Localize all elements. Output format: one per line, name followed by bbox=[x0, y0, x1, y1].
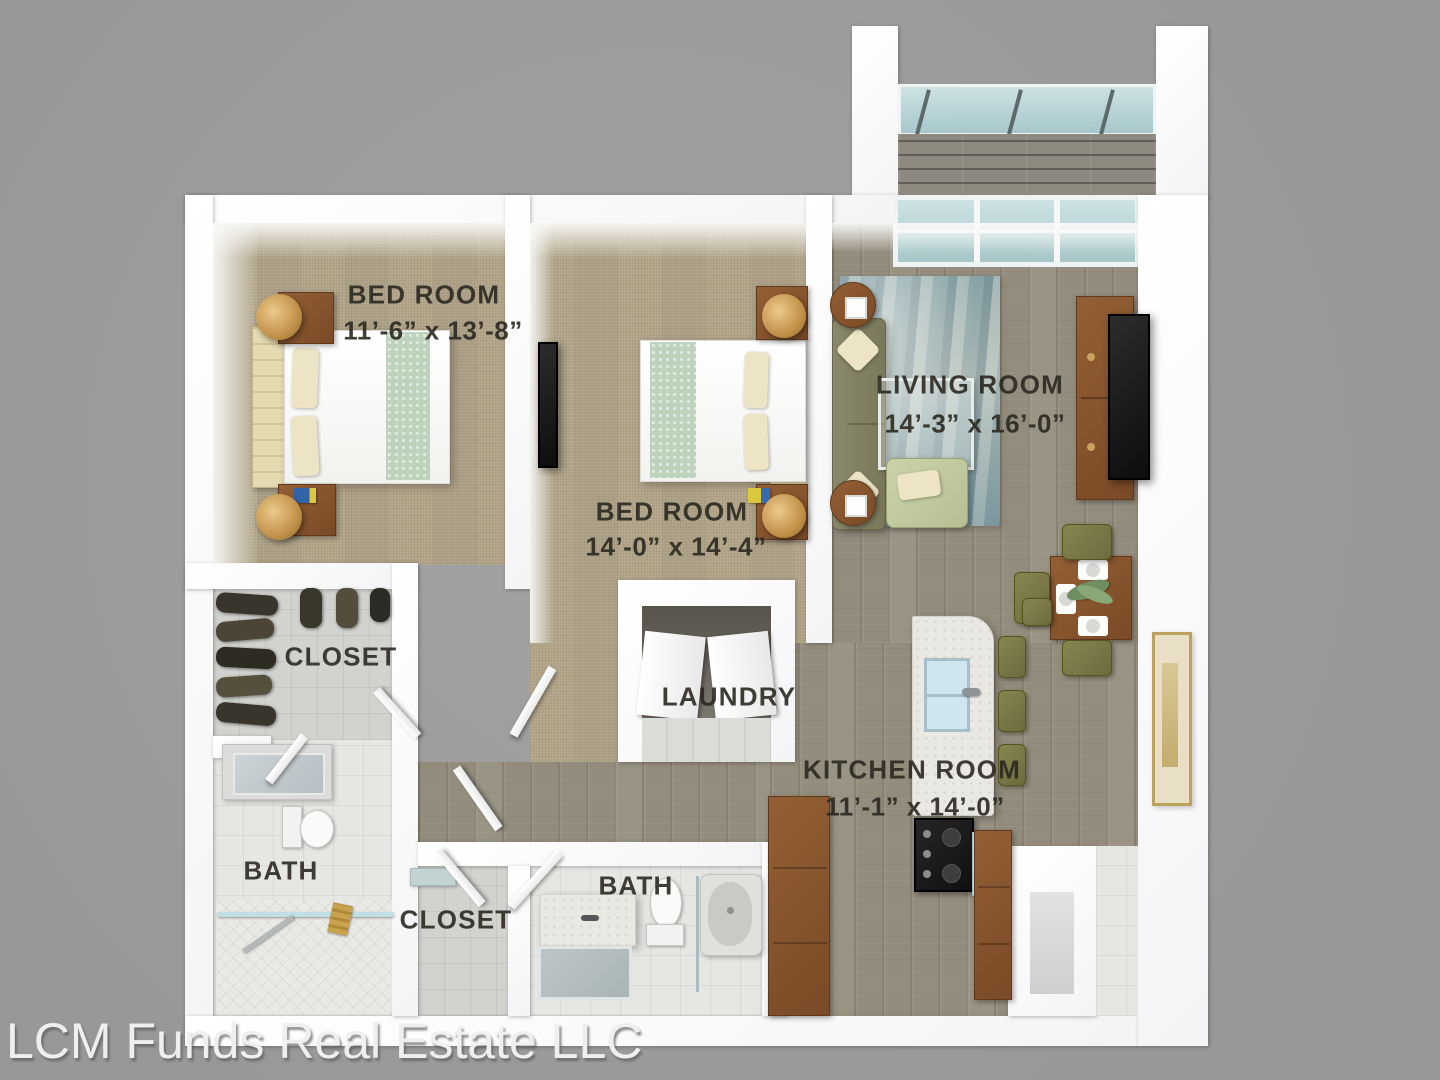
toilet-tank bbox=[646, 924, 684, 946]
balcony-deck bbox=[898, 134, 1156, 198]
closet-main-label: CLOSET bbox=[285, 642, 398, 673]
laundry-threshold bbox=[642, 718, 771, 762]
closet-hall-label: CLOSET bbox=[400, 905, 513, 936]
stove-knob-icon bbox=[923, 830, 931, 838]
hanging-clothes bbox=[370, 588, 390, 622]
side-table bbox=[830, 480, 876, 526]
cabinet-line bbox=[773, 942, 827, 944]
bedroom2-floor-extension bbox=[530, 643, 618, 762]
shower-glass-panel bbox=[696, 876, 699, 992]
kitchen-label: KITCHEN ROOM bbox=[803, 755, 1021, 786]
bedroom1-dimensions: 11’-6” x 13’-8” bbox=[343, 316, 523, 347]
pillow bbox=[291, 348, 319, 409]
kitchen-dimensions: 11’-1” x 14’-0” bbox=[825, 792, 1005, 823]
toilet-tank bbox=[282, 806, 302, 848]
bedroom2-label: BED ROOM bbox=[596, 497, 749, 528]
burner-icon bbox=[942, 864, 961, 883]
hanging-clothes bbox=[336, 588, 358, 628]
bathtub-basin bbox=[708, 882, 752, 946]
bar-stool bbox=[998, 636, 1026, 678]
bedroom1-label: BED ROOM bbox=[348, 280, 501, 311]
bathtub-drain-icon bbox=[727, 907, 734, 914]
railing-post-icon bbox=[915, 89, 931, 134]
stove-knob-icon bbox=[923, 850, 931, 858]
shower-glass-panel bbox=[218, 912, 394, 917]
console-knob bbox=[1087, 443, 1095, 451]
cabinet-line bbox=[978, 943, 1010, 945]
vanity-mirror bbox=[538, 946, 632, 1000]
table-lamp bbox=[256, 494, 302, 540]
pillow bbox=[743, 414, 769, 471]
wall-art-print bbox=[1162, 663, 1178, 767]
laundry-label: LAUNDRY bbox=[662, 682, 797, 713]
bed-runner bbox=[386, 332, 430, 480]
table-lamp bbox=[845, 495, 867, 517]
wall-art bbox=[1152, 632, 1192, 806]
wall-bedroom2-living bbox=[806, 195, 832, 643]
dining-chair bbox=[1022, 598, 1052, 626]
railing-post-icon bbox=[1007, 89, 1023, 134]
kitchen-cabinet bbox=[768, 796, 830, 1016]
placemat bbox=[1078, 560, 1108, 580]
balcony-left-wall bbox=[852, 26, 898, 198]
table-lamp bbox=[762, 494, 806, 538]
floor-plan-render: BED ROOM 11’-6” x 13’-8” BED ROOM 14’-0”… bbox=[0, 0, 1440, 1080]
placemat bbox=[1078, 616, 1108, 636]
wall-face bbox=[530, 223, 806, 259]
sink-faucet bbox=[962, 688, 980, 696]
wall-mid-vertical bbox=[392, 563, 418, 1016]
burner-icon bbox=[942, 828, 961, 847]
toilet-bowl bbox=[300, 810, 334, 848]
hanging-clothes bbox=[215, 592, 278, 616]
console-knob bbox=[1087, 353, 1095, 361]
entry-nook-recess bbox=[1030, 892, 1074, 994]
balcony-glass-railing bbox=[898, 84, 1156, 136]
sink-divider bbox=[927, 694, 967, 697]
watermark: LCM Funds Real Estate LLC bbox=[6, 1012, 642, 1070]
stove bbox=[914, 818, 974, 892]
cabinet-line bbox=[978, 886, 1010, 888]
entry-floor bbox=[1096, 846, 1138, 1016]
hanging-clothes bbox=[215, 674, 272, 698]
living-room-dimensions: 14’-3” x 16’-0” bbox=[885, 409, 1066, 440]
dining-chair bbox=[1062, 640, 1112, 676]
bed-runner bbox=[650, 342, 696, 478]
bar-stool bbox=[998, 690, 1026, 732]
wall-bedroom1-bedroom2 bbox=[505, 195, 530, 589]
bed-headboard bbox=[252, 326, 288, 488]
hanging-clothes bbox=[216, 646, 277, 669]
wall-face bbox=[832, 223, 1138, 253]
bath-hall-label: BATH bbox=[598, 871, 673, 902]
table-lamp bbox=[762, 294, 806, 338]
bedroom2-dimensions: 14’-0” x 14’-4” bbox=[586, 532, 767, 563]
table-lamp bbox=[845, 297, 867, 319]
side-table bbox=[830, 282, 876, 328]
cabinet-line bbox=[773, 867, 827, 869]
dining-chair bbox=[1062, 524, 1112, 560]
table-lamp bbox=[256, 294, 302, 340]
tv bbox=[1108, 314, 1150, 480]
wall-tv bbox=[538, 342, 558, 468]
living-room-label: LIVING ROOM bbox=[876, 370, 1064, 401]
wall-bedroom1-closet bbox=[185, 563, 415, 589]
hallway-floor bbox=[418, 762, 770, 842]
hanging-clothes bbox=[300, 588, 322, 628]
stove-knob-icon bbox=[923, 870, 931, 878]
railing-post-icon bbox=[1099, 89, 1115, 134]
exterior-wall-left bbox=[185, 195, 213, 1046]
bath-vanity bbox=[540, 894, 636, 946]
balcony-right-wall bbox=[1156, 26, 1208, 198]
vanity-faucet bbox=[581, 915, 599, 921]
book bbox=[294, 488, 316, 503]
pillow bbox=[743, 352, 769, 409]
kitchen-cabinet bbox=[974, 830, 1012, 1000]
bath-main-label: BATH bbox=[243, 856, 318, 887]
wall-hall-bottom bbox=[418, 842, 770, 866]
pillow bbox=[290, 415, 319, 476]
bathtub bbox=[700, 874, 762, 956]
exterior-wall-top bbox=[185, 195, 895, 223]
